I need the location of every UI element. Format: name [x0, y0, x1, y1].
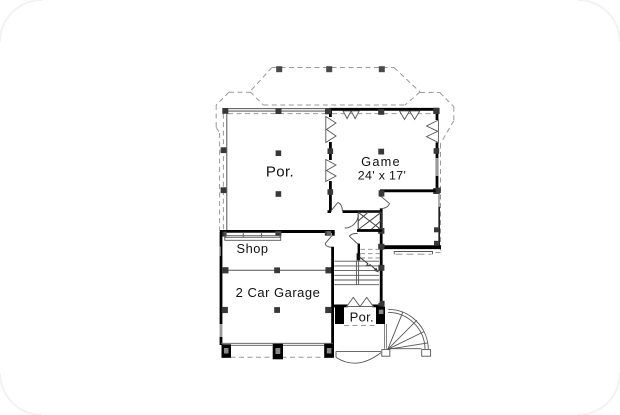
svg-text:Game: Game — [361, 154, 401, 169]
svg-text:Por.: Por. — [266, 164, 294, 181]
svg-text:24' x 17': 24' x 17' — [358, 168, 407, 182]
svg-text:Por.: Por. — [350, 309, 374, 324]
svg-text:Shop: Shop — [237, 241, 269, 256]
svg-text:2 Car Garage: 2 Car Garage — [236, 285, 321, 300]
